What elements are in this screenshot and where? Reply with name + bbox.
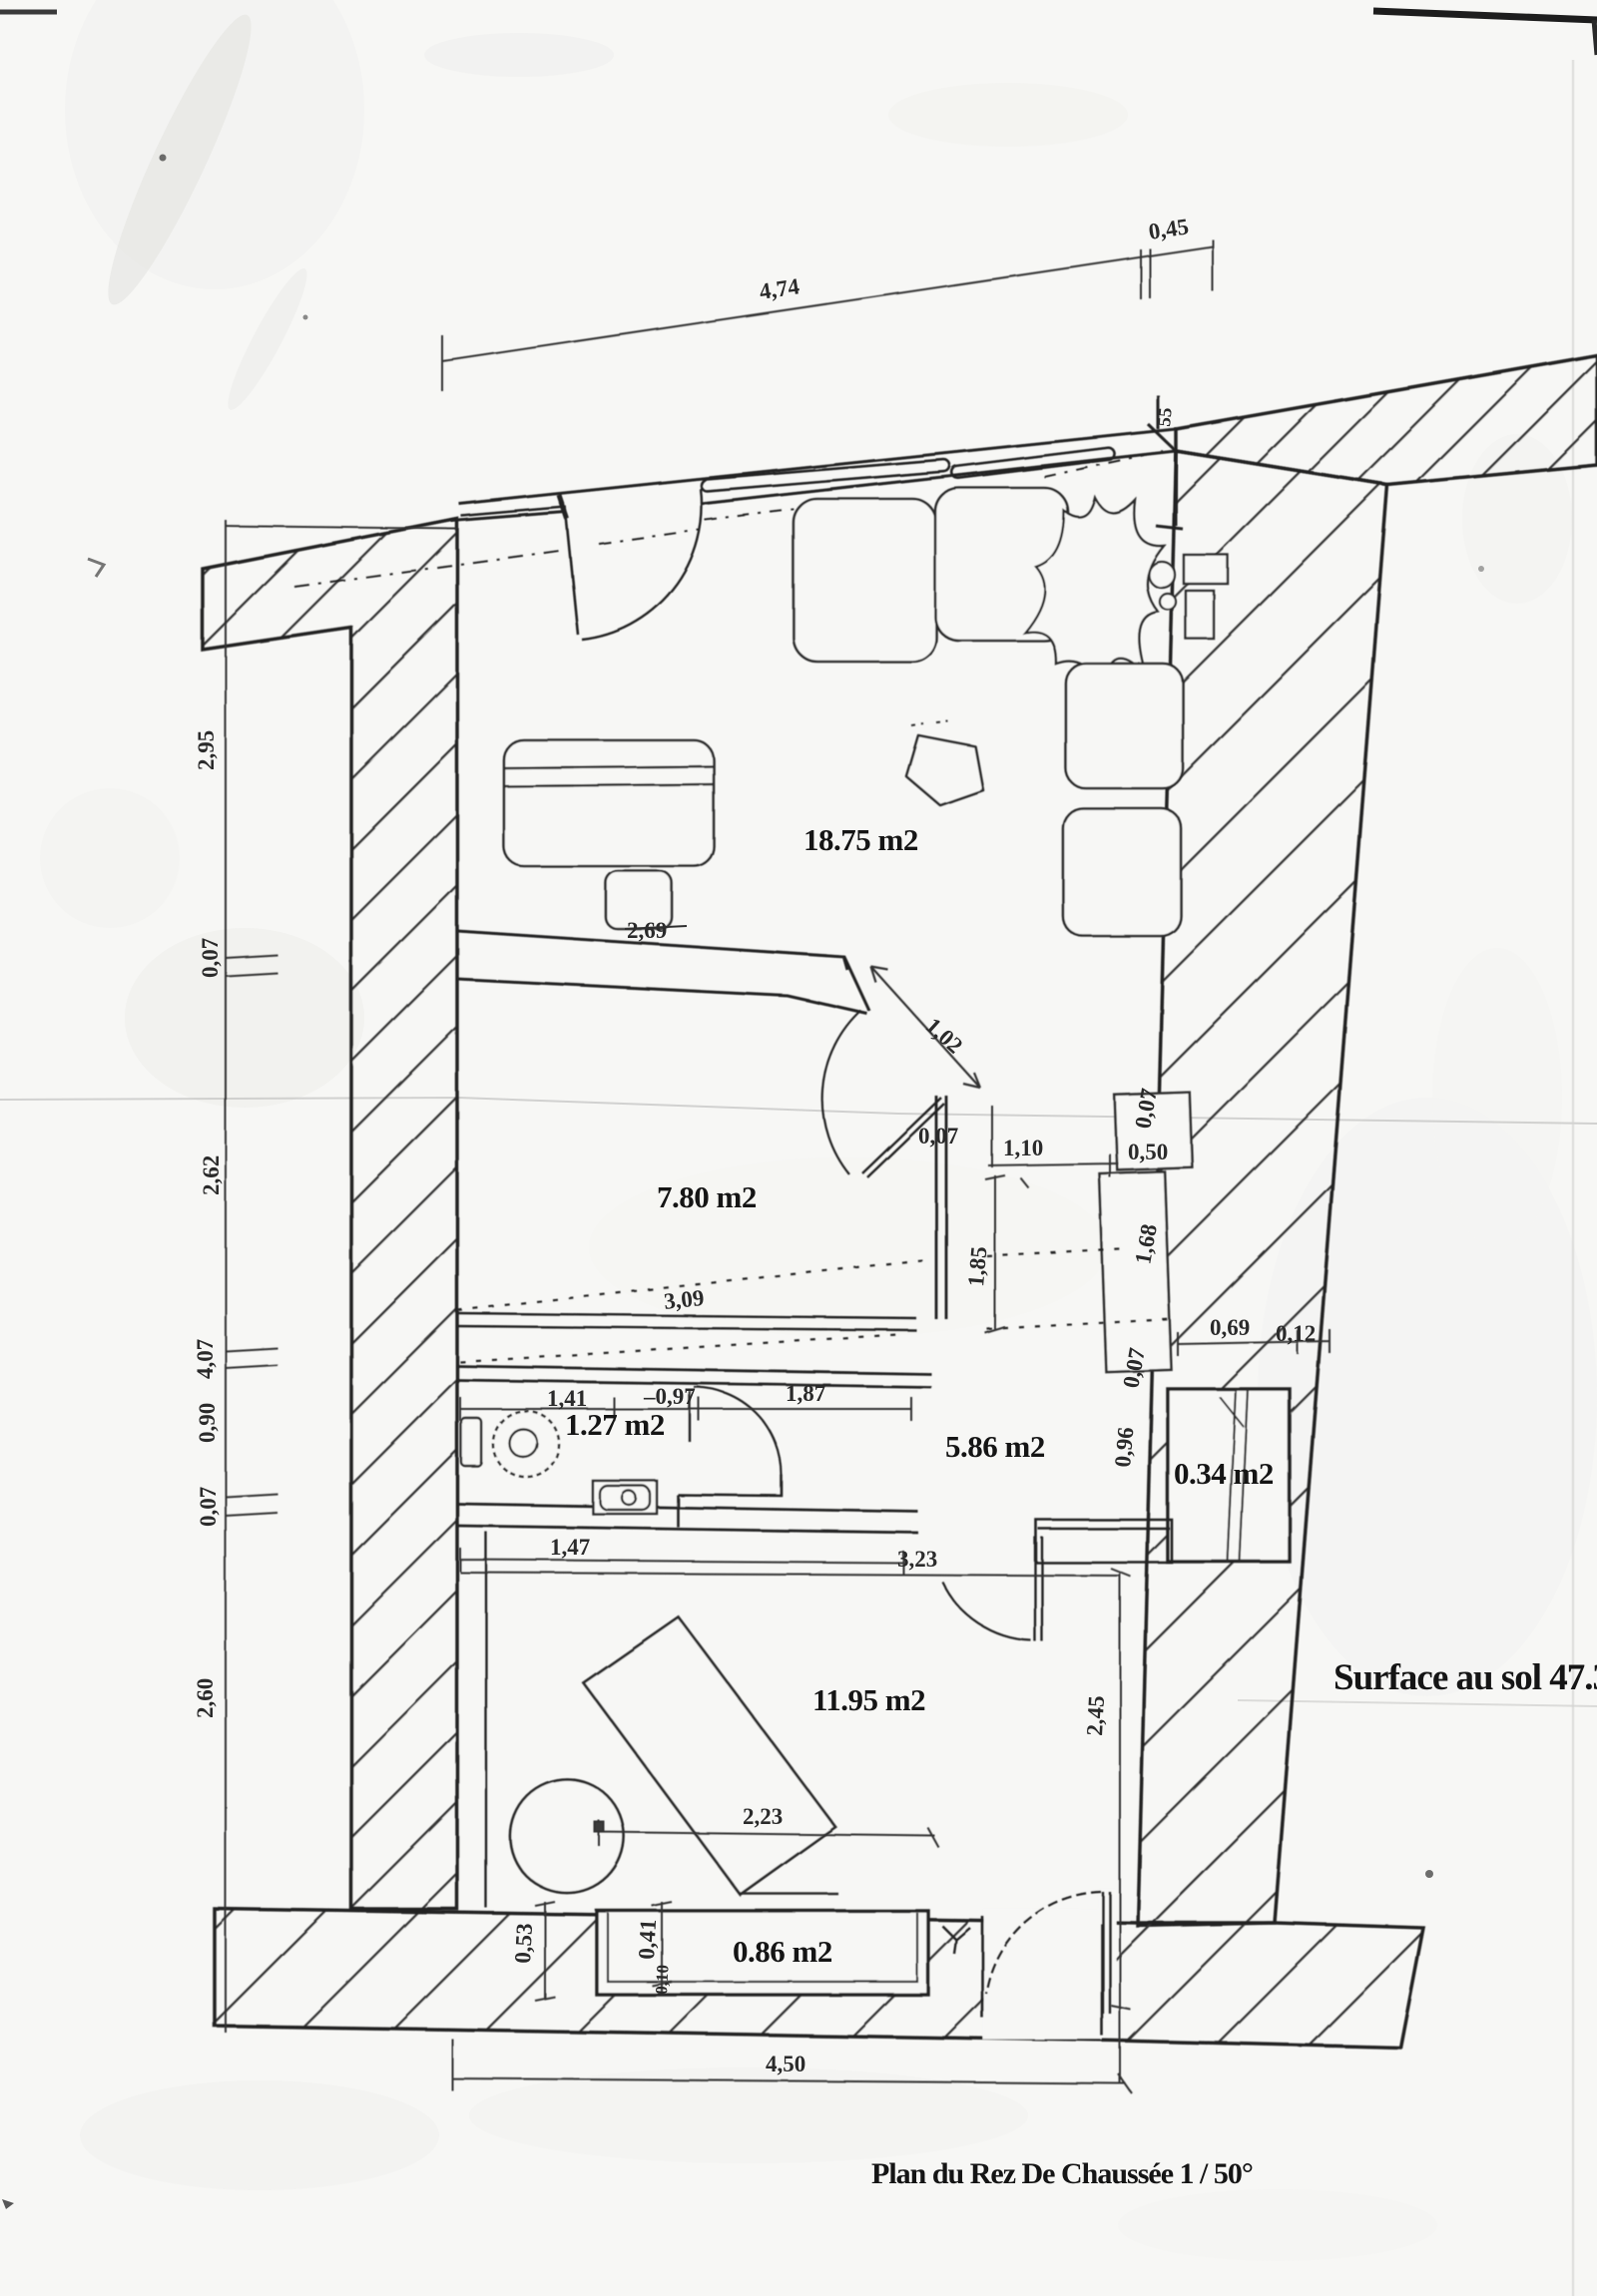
svg-text:11.95 m2: 11.95 m2 xyxy=(812,1682,925,1717)
svg-text:1,47: 1,47 xyxy=(550,1535,590,1560)
svg-text:Plan du Rez De Chaussée 1 / 50: Plan du Rez De Chaussée 1 / 50° xyxy=(871,2157,1253,2190)
svg-text:0,07: 0,07 xyxy=(196,1487,221,1527)
svg-text:1,10: 1,10 xyxy=(1003,1136,1043,1160)
svg-text:55: 55 xyxy=(1154,407,1177,428)
svg-text:0,07: 0,07 xyxy=(198,938,223,978)
svg-text:4,07: 4,07 xyxy=(193,1339,218,1379)
svg-text:0,07: 0,07 xyxy=(918,1124,958,1148)
svg-text:1,87: 1,87 xyxy=(786,1381,825,1406)
svg-text:0.86 m2: 0.86 m2 xyxy=(733,1934,832,1969)
svg-text:0,53: 0,53 xyxy=(510,1923,537,1965)
svg-text:5.86 m2: 5.86 m2 xyxy=(945,1429,1045,1464)
svg-text:2,95: 2,95 xyxy=(194,730,219,770)
svg-text:Surface au sol 47.3: Surface au sol 47.3 xyxy=(1333,1657,1597,1698)
svg-text:0,10: 0,10 xyxy=(652,1965,673,1996)
svg-text:0,41: 0,41 xyxy=(634,1919,661,1961)
svg-text:3,09: 3,09 xyxy=(663,1285,706,1314)
svg-text:7.80 m2: 7.80 m2 xyxy=(657,1179,757,1214)
svg-text:0,50: 0,50 xyxy=(1128,1140,1168,1164)
svg-text:0,90: 0,90 xyxy=(195,1403,220,1443)
svg-text:0,69: 0,69 xyxy=(1210,1315,1250,1340)
svg-text:2,69: 2,69 xyxy=(627,918,667,943)
svg-text:1,41: 1,41 xyxy=(547,1386,587,1411)
svg-text:–0,97: –0,97 xyxy=(643,1384,696,1409)
svg-text:0.34 m2: 0.34 m2 xyxy=(1174,1456,1274,1491)
svg-text:0,96: 0,96 xyxy=(1110,1426,1138,1468)
svg-text:1.27 m2: 1.27 m2 xyxy=(565,1407,665,1442)
svg-text:0,12: 0,12 xyxy=(1276,1321,1316,1346)
svg-text:18.75 m2: 18.75 m2 xyxy=(803,822,918,857)
svg-text:1,85: 1,85 xyxy=(963,1245,991,1287)
svg-text:2,23: 2,23 xyxy=(743,1804,783,1829)
svg-text:2,62: 2,62 xyxy=(199,1155,224,1195)
svg-text:2,60: 2,60 xyxy=(193,1678,218,1718)
svg-text:3,23: 3,23 xyxy=(897,1547,937,1572)
svg-text:4,50: 4,50 xyxy=(766,2052,805,2076)
svg-text:2,45: 2,45 xyxy=(1082,1695,1109,1737)
